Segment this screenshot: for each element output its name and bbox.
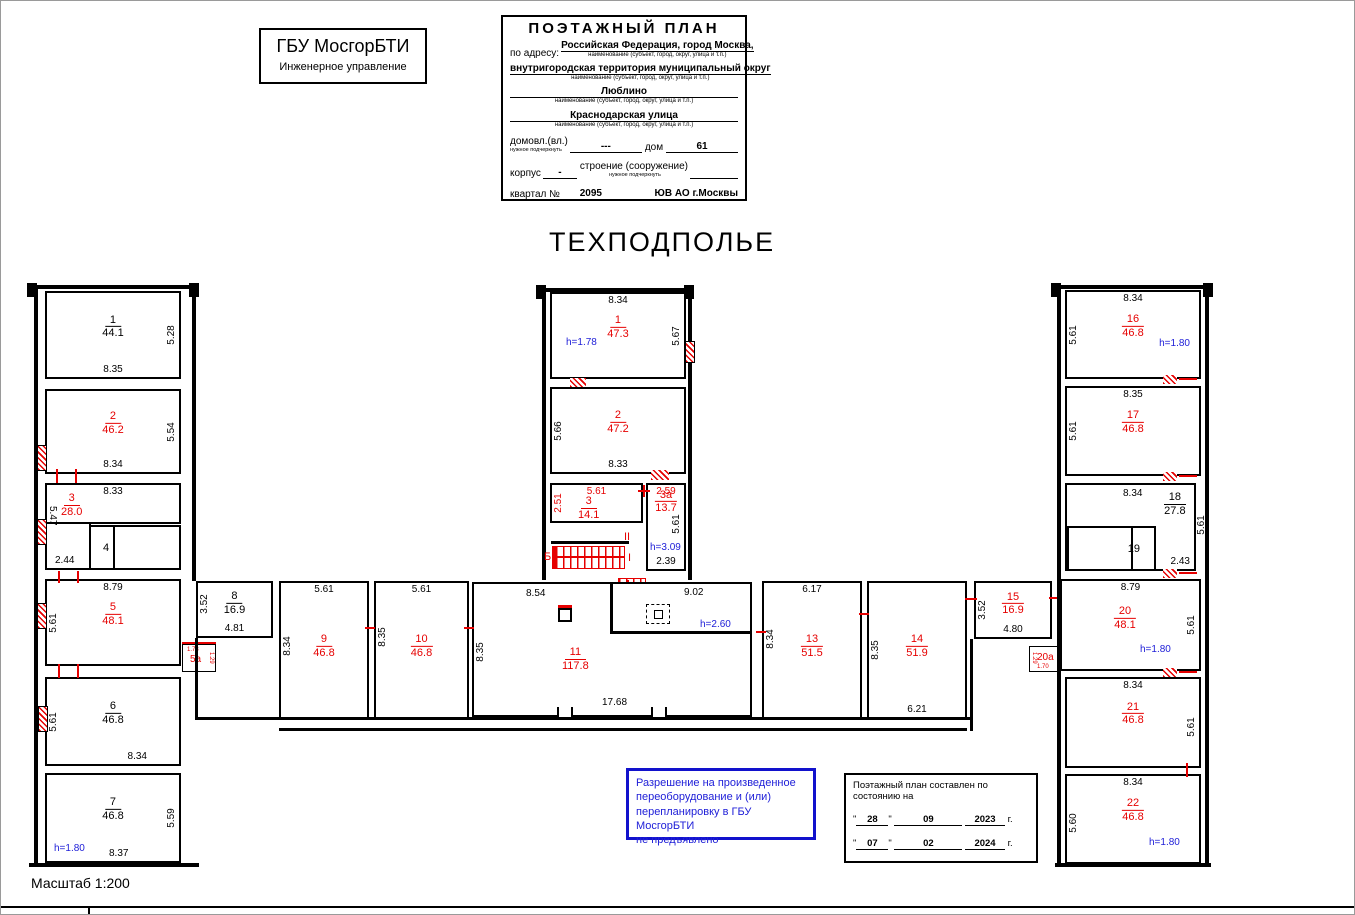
floor-title: ТЕХПОДПОЛЬЕ [549, 227, 809, 258]
stair-letter: Б [544, 552, 551, 563]
dimension-label: 4.80 [1003, 625, 1022, 635]
dimension-label: 8.33 [103, 487, 122, 497]
domovl-value: --- [570, 141, 642, 153]
opening-hatch-icon [1163, 569, 1177, 578]
height-label: h=1.80 [1140, 645, 1171, 655]
room-number: 16 [1122, 313, 1144, 327]
dimension-label: 5.61 [49, 613, 59, 632]
dimension-label: 8.79 [103, 583, 122, 593]
domovl-caption: нужное подчеркнуть [510, 147, 570, 154]
room-band-20a: 20а 1.70 1.29 [1029, 646, 1059, 672]
equipment-icon [558, 608, 572, 622]
door-opening [77, 571, 79, 583]
room-label: 3 28.0 [61, 492, 82, 518]
room-band-9: 9 46.8 5.61 8.34 [279, 581, 369, 719]
room-number: 1 [105, 313, 121, 327]
room-label: 8 16.9 [224, 590, 245, 616]
room-center-2: 2 47.2 5.66 8.33 [550, 387, 686, 474]
address-caption-4: наименование (субъект, город, округ, ули… [510, 122, 738, 129]
sheet-frame-tick [88, 906, 90, 915]
kvartal-value: 2095 [562, 188, 620, 200]
room-area: 51.9 [906, 646, 928, 659]
stroenie-caption: нужное подчеркнуть [580, 172, 690, 179]
survey-month: 02 [894, 838, 962, 850]
wall [970, 639, 973, 731]
pilaster [536, 285, 546, 299]
dimension-label: 5.61 [587, 487, 606, 497]
year-suffix: г. [1008, 838, 1013, 849]
pilaster [189, 283, 199, 297]
address-caption-2: наименование (субъект, город, округ, ули… [510, 75, 771, 82]
wall [196, 717, 973, 720]
survey-year: 2023 [965, 814, 1005, 826]
dimension-label: 2.39 [656, 557, 675, 567]
dimension-label: 2.51 [554, 493, 564, 512]
dimension-label: 8.34 [283, 636, 293, 655]
wall [1131, 526, 1133, 571]
room-number: 2 [105, 410, 121, 424]
dimension-label: 1.29 [208, 652, 214, 664]
scale-label: Масштаб 1:200 [31, 875, 130, 891]
room-area: 16.9 [224, 604, 245, 617]
dimension-label: 8.34 [608, 296, 627, 306]
sheet-frame-line [1, 906, 1355, 908]
wall [542, 290, 546, 580]
survey-year: 2024 [965, 838, 1005, 850]
room-area: 46.8 [102, 810, 123, 823]
dimension-label: 5.61 [672, 514, 682, 533]
vent-shaft-icon [37, 603, 47, 629]
dimension-label: 1.70 [1037, 664, 1049, 670]
survey-day: 28 [856, 814, 888, 826]
room-area: 46.8 [1122, 714, 1144, 727]
okrug-value: ЮВ АО г.Москвы [620, 188, 738, 200]
wall [610, 631, 752, 634]
room-label: 6 46.8 [102, 700, 123, 726]
building-row: корпус - строение (сооружение) нужное по… [510, 161, 738, 179]
dom-value: 61 [666, 141, 738, 153]
korpus-label: корпус [510, 168, 543, 179]
height-label: h=3.09 [650, 543, 681, 553]
dimension-label: 8.35 [378, 627, 388, 646]
dimension-label: 8.35 [103, 365, 122, 375]
room-left-3: 3 28.0 8.33 [45, 483, 181, 524]
dimension-label: 5.61 [1069, 421, 1079, 440]
room-number: 20а [1037, 653, 1054, 663]
address-value-2: внутригородская территория муниципальный… [510, 63, 771, 75]
dimension-label: 8.35 [871, 640, 881, 659]
column-icon [654, 610, 663, 619]
dimension-label: 8.37 [109, 849, 128, 859]
survey-date-row: "28" 09 2023 г. [853, 814, 1029, 826]
kvartal-label: квартал № [510, 189, 562, 200]
dimension-label: 8.79 [1121, 583, 1140, 593]
room-area: 14.1 [578, 509, 599, 522]
room-area: 44.1 [102, 327, 123, 340]
wall [1053, 285, 1209, 289]
room-number: 9 [316, 633, 332, 647]
permission-note-line: не предъявлено [636, 833, 806, 847]
dimension-label: 8.34 [766, 630, 776, 649]
dimension-label: 5.61 [1197, 516, 1207, 535]
room-number: 2 [610, 409, 626, 423]
room-area: 117.8 [562, 660, 589, 673]
room-number: 13 [801, 633, 823, 647]
room-label: 18 27.8 [1164, 491, 1186, 517]
address-row-3: Люблино наименование (субъект, город, ок… [510, 86, 738, 105]
room-area: 13.7 [655, 502, 677, 515]
room-number: 19 [1128, 544, 1140, 555]
room-right-20: 20 48.1 8.79 5.61 h=1.80 [1060, 579, 1201, 671]
floor-plan-sheet: ГБУ МосгорБТИ Инженерное управление ПОЭТ… [0, 0, 1355, 915]
room-label: 13 51.5 [801, 633, 823, 659]
dimension-label: 8.34 [128, 752, 147, 762]
staircase-arrow-icon [555, 556, 625, 558]
room-number: 6 [105, 700, 121, 714]
room-label: 20 48.1 [1114, 605, 1136, 631]
room-area: 16.9 [1002, 604, 1024, 617]
room-right-19: 19 [1067, 526, 1156, 571]
height-label: h=1.78 [566, 338, 597, 348]
room-number: 4 [103, 543, 109, 554]
equipment-icon [558, 605, 572, 608]
address-value-1: Российская Федерация, город Москва, [561, 40, 754, 52]
room-left-5: 5 48.1 8.79 5.61 [45, 579, 181, 666]
year-suffix: г. [1008, 814, 1013, 825]
dimension-label: 17.68 [602, 698, 627, 708]
dimension-label: 5.59 [167, 808, 177, 827]
dimension-label: 5.66 [554, 421, 564, 440]
room-band-13: 13 51.5 6.17 8.34 [762, 581, 862, 719]
room-band-15: 15 16.9 3.52 4.80 [974, 581, 1052, 639]
dimension-label: 5.67 [672, 326, 682, 345]
wall [1057, 285, 1061, 867]
korpus-value: - [543, 167, 577, 179]
address-form-box: ПОЭТАЖНЫЙ ПЛАН по адресу: Российская Фед… [501, 15, 747, 201]
room-area: 46.8 [313, 646, 334, 659]
dom-label: дом [642, 142, 666, 153]
room-label: 2 47.2 [607, 409, 628, 435]
door-opening [1179, 572, 1197, 574]
dimension-label: 3.52 [200, 594, 210, 613]
dimension-label: 8.54 [526, 589, 545, 599]
dimension-label: 8.34 [1123, 489, 1142, 499]
dimension-label: 8.33 [608, 460, 627, 470]
room-left-7: 7 46.8 5.59 8.37 h=1.80 [45, 773, 181, 863]
opening-hatch-icon [570, 378, 586, 387]
dimension-label: 5.61 [1187, 615, 1197, 634]
wall [1205, 285, 1209, 867]
house-row: домовл.(вл.) нужное подчеркнуть --- дом … [510, 136, 738, 154]
wall [688, 290, 692, 580]
pilaster [27, 283, 37, 297]
org-name: ГБУ МосгорБТИ [261, 36, 425, 57]
room-number: 8 [226, 590, 242, 604]
dimension-label: 5.60 [1069, 814, 1079, 833]
address-value-3: Люблино [510, 86, 738, 98]
dimension-label: 5.61 [412, 585, 431, 595]
room-left-5a: 1.73 5а 1.29 [182, 644, 216, 672]
permission-note-box: Разрешение на произведенное переоборудов… [626, 768, 816, 840]
permission-note-line: Разрешение на произведенное [636, 776, 806, 790]
vent-shaft-icon [685, 341, 695, 363]
dimension-label: 8.34 [1123, 681, 1142, 691]
room-label: 11 117.8 [562, 646, 589, 672]
quote-mark: " [888, 814, 891, 825]
room-left-3-alcove: 2.44 [45, 522, 91, 570]
stair-flight-lower: I [628, 553, 631, 564]
door-opening [756, 631, 766, 633]
door-opening [75, 469, 77, 483]
room-number: 22 [1122, 797, 1144, 811]
height-label: h=2.60 [700, 620, 731, 630]
pilaster [1051, 283, 1061, 297]
dimension-label: 4.81 [225, 624, 244, 634]
wall [610, 582, 613, 634]
door-opening [1179, 378, 1197, 380]
height-label: h=1.80 [1159, 339, 1190, 349]
room-number: 11 [565, 646, 586, 660]
room-left-4: 4 [89, 525, 181, 570]
permission-note-line: перепланировку в ГБУ МосгорБТИ [636, 805, 806, 834]
door-opening [1179, 475, 1197, 477]
room-number: 21 [1122, 701, 1144, 715]
room-area: 28.0 [61, 506, 82, 519]
kvartal-row: квартал № 2095 ЮВ АО г.Москвы [510, 188, 738, 200]
room-number: 5 [105, 601, 121, 615]
room-area: 46.8 [1122, 423, 1144, 436]
dimension-label: 8.34 [1123, 778, 1142, 788]
height-label: h=1.80 [1149, 838, 1180, 848]
wall [551, 541, 629, 544]
survey-date-row: "07" 02 2024 г. [853, 838, 1029, 850]
room-number: 7 [105, 796, 121, 810]
pilaster [1203, 283, 1213, 297]
room-right-17: 17 46.8 8.35 5.61 [1065, 386, 1201, 476]
form-title: ПОЭТАЖНЫЙ ПЛАН [510, 20, 738, 37]
room-area: 46.8 [410, 646, 432, 659]
room-left-2: 2 46.2 5.54 8.34 [45, 389, 181, 474]
room-label: 1 44.1 [102, 313, 123, 339]
opening-hatch-icon [1163, 375, 1177, 384]
height-label: h=1.80 [54, 844, 85, 854]
room-number: 18 [1164, 491, 1186, 505]
room-number: 14 [906, 633, 928, 647]
room-area: 46.8 [102, 714, 123, 727]
room-band-8: 8 16.9 3.52 4.81 [196, 581, 273, 638]
address-caption-1: наименование (субъект, город, округ, ули… [561, 52, 754, 59]
room-center-1: 1 47.3 8.34 5.67 h=1.78 [550, 292, 686, 379]
dimension-label: 5.61 [1187, 717, 1197, 736]
opening-hatch-icon [651, 470, 669, 480]
org-department: Инженерное управление [261, 61, 425, 73]
survey-date-title: Поэтажный план составлен по состоянию на [853, 780, 1029, 802]
dimension-label: 9.02 [684, 588, 703, 598]
door-opening [464, 627, 474, 629]
door-opening [1179, 671, 1197, 673]
wall [29, 285, 199, 289]
room-label: 14 51.9 [906, 633, 928, 659]
dimension-label: 8.34 [1123, 294, 1142, 304]
dimension-label: 5.61 [49, 712, 59, 731]
permission-note-line: переоборудование и (или) [636, 790, 806, 804]
room-label: 2 46.2 [102, 410, 123, 436]
room-area: 47.2 [607, 423, 628, 436]
room-label: 21 46.8 [1122, 701, 1144, 727]
wall [279, 728, 967, 731]
room-center-3: 3 14.1 5.61 2.51 [550, 483, 643, 523]
dimension-label: 8.35 [1123, 390, 1142, 400]
room-number: 20 [1114, 605, 1136, 619]
wall [192, 285, 196, 581]
opening-hatch-icon [1163, 472, 1177, 481]
dimension-label: 5.61 [1069, 325, 1079, 344]
address-row-2: внутригородская территория муниципальный… [510, 63, 738, 82]
room-number: 15 [1002, 590, 1024, 604]
room-area: 47.3 [607, 328, 628, 341]
vent-shaft-icon [37, 519, 47, 545]
dimension-label: 2.59 [656, 487, 675, 497]
room-label: 9 46.8 [313, 633, 334, 659]
vent-shaft-icon [37, 445, 47, 471]
room-area: 46.2 [102, 424, 123, 437]
dimension-label: 8.34 [103, 460, 122, 470]
wall [113, 525, 115, 570]
room-label: 10 46.8 [410, 633, 432, 659]
room-area: 48.1 [102, 615, 123, 628]
door-opening [965, 598, 977, 600]
address-row-1: по адресу: Российская Федерация, город М… [510, 40, 738, 59]
dimension-label: 2.44 [55, 556, 74, 566]
room-area: 48.1 [1114, 618, 1136, 631]
room-area: 51.5 [801, 646, 823, 659]
opening-hatch-icon [1163, 668, 1177, 677]
door-opening [859, 613, 869, 615]
room-number: 17 [1122, 409, 1144, 423]
wall [29, 863, 199, 867]
room-label: 7 46.8 [102, 796, 123, 822]
address-caption-3: наименование (субъект, город, округ, ули… [510, 98, 738, 105]
room-left-1: 1 44.1 5.28 8.35 [45, 291, 181, 379]
dimension-label: 5.28 [167, 325, 177, 344]
domovl-label: домовл.(вл.) [510, 136, 570, 147]
room-right-21: 21 46.8 8.34 5.61 [1065, 677, 1201, 768]
room-number: 3 [64, 492, 80, 506]
dimension-label: 5.54 [167, 422, 177, 441]
dimension-label: 5.47 [47, 506, 57, 525]
wall [195, 638, 198, 720]
room-area: 46.8 [1122, 327, 1144, 340]
address-row-4: Краснодарская улица наименование (субъек… [510, 110, 738, 129]
door-opening [58, 571, 60, 583]
room-right-16: 16 46.8 8.34 5.61 h=1.80 [1065, 290, 1201, 379]
dimension-label: 3.52 [978, 600, 988, 619]
stroenie-label: строение (сооружение) [580, 161, 690, 172]
dimension-label: 5.61 [314, 585, 333, 595]
room-area: 46.8 [1122, 811, 1144, 824]
quote-mark: " [888, 838, 891, 849]
address-label: по адресу: [510, 48, 561, 59]
room-label: 16 46.8 [1122, 313, 1144, 339]
room-number: 10 [410, 633, 432, 647]
room-label: 3 14.1 [578, 495, 599, 521]
room-right-22: 22 46.8 8.34 5.60 h=1.80 [1065, 774, 1201, 864]
room-label: 17 46.8 [1122, 409, 1144, 435]
dimension-label: 8.35 [476, 642, 486, 661]
door-opening [77, 664, 79, 678]
dimension-label: 1.29 [1031, 652, 1037, 664]
dimension-label: 2.43 [1171, 557, 1190, 567]
dimension-label: 6.17 [802, 585, 821, 595]
dimension-label: 6.21 [907, 705, 926, 715]
org-title-box: ГБУ МосгорБТИ Инженерное управление [259, 28, 427, 84]
door-opening [1186, 763, 1188, 777]
stair-flight-upper: II [624, 532, 630, 543]
door-opening [365, 627, 375, 629]
room-center-3a: 3а 13.7 2.59 5.61 h=3.09 2.39 [646, 483, 686, 571]
address-value-4: Краснодарская улица [510, 110, 738, 122]
room-left-6: 6 46.8 5.61 8.34 [45, 677, 181, 766]
room-band-10: 10 46.8 5.61 8.35 [374, 581, 469, 719]
door-opening [56, 469, 58, 483]
room-label: 5 48.1 [102, 601, 123, 627]
stroenie-value [690, 178, 738, 179]
room-area: 27.8 [1164, 505, 1186, 518]
room-label: 22 46.8 [1122, 797, 1144, 823]
door-opening [182, 642, 216, 644]
room-label: 1 47.3 [607, 314, 628, 340]
survey-date-box: Поэтажный план составлен по состоянию на… [844, 773, 1038, 863]
wall [34, 285, 38, 867]
room-number: 3 [581, 495, 597, 509]
room-band-14: 14 51.9 8.35 6.21 [867, 581, 967, 719]
survey-day: 07 [856, 838, 888, 850]
survey-month: 09 [894, 814, 962, 826]
door-opening [643, 485, 645, 497]
room-label: 15 16.9 [1002, 590, 1024, 616]
room-number: 1 [610, 314, 626, 328]
door-opening [58, 664, 60, 678]
vent-shaft-icon [38, 706, 48, 732]
